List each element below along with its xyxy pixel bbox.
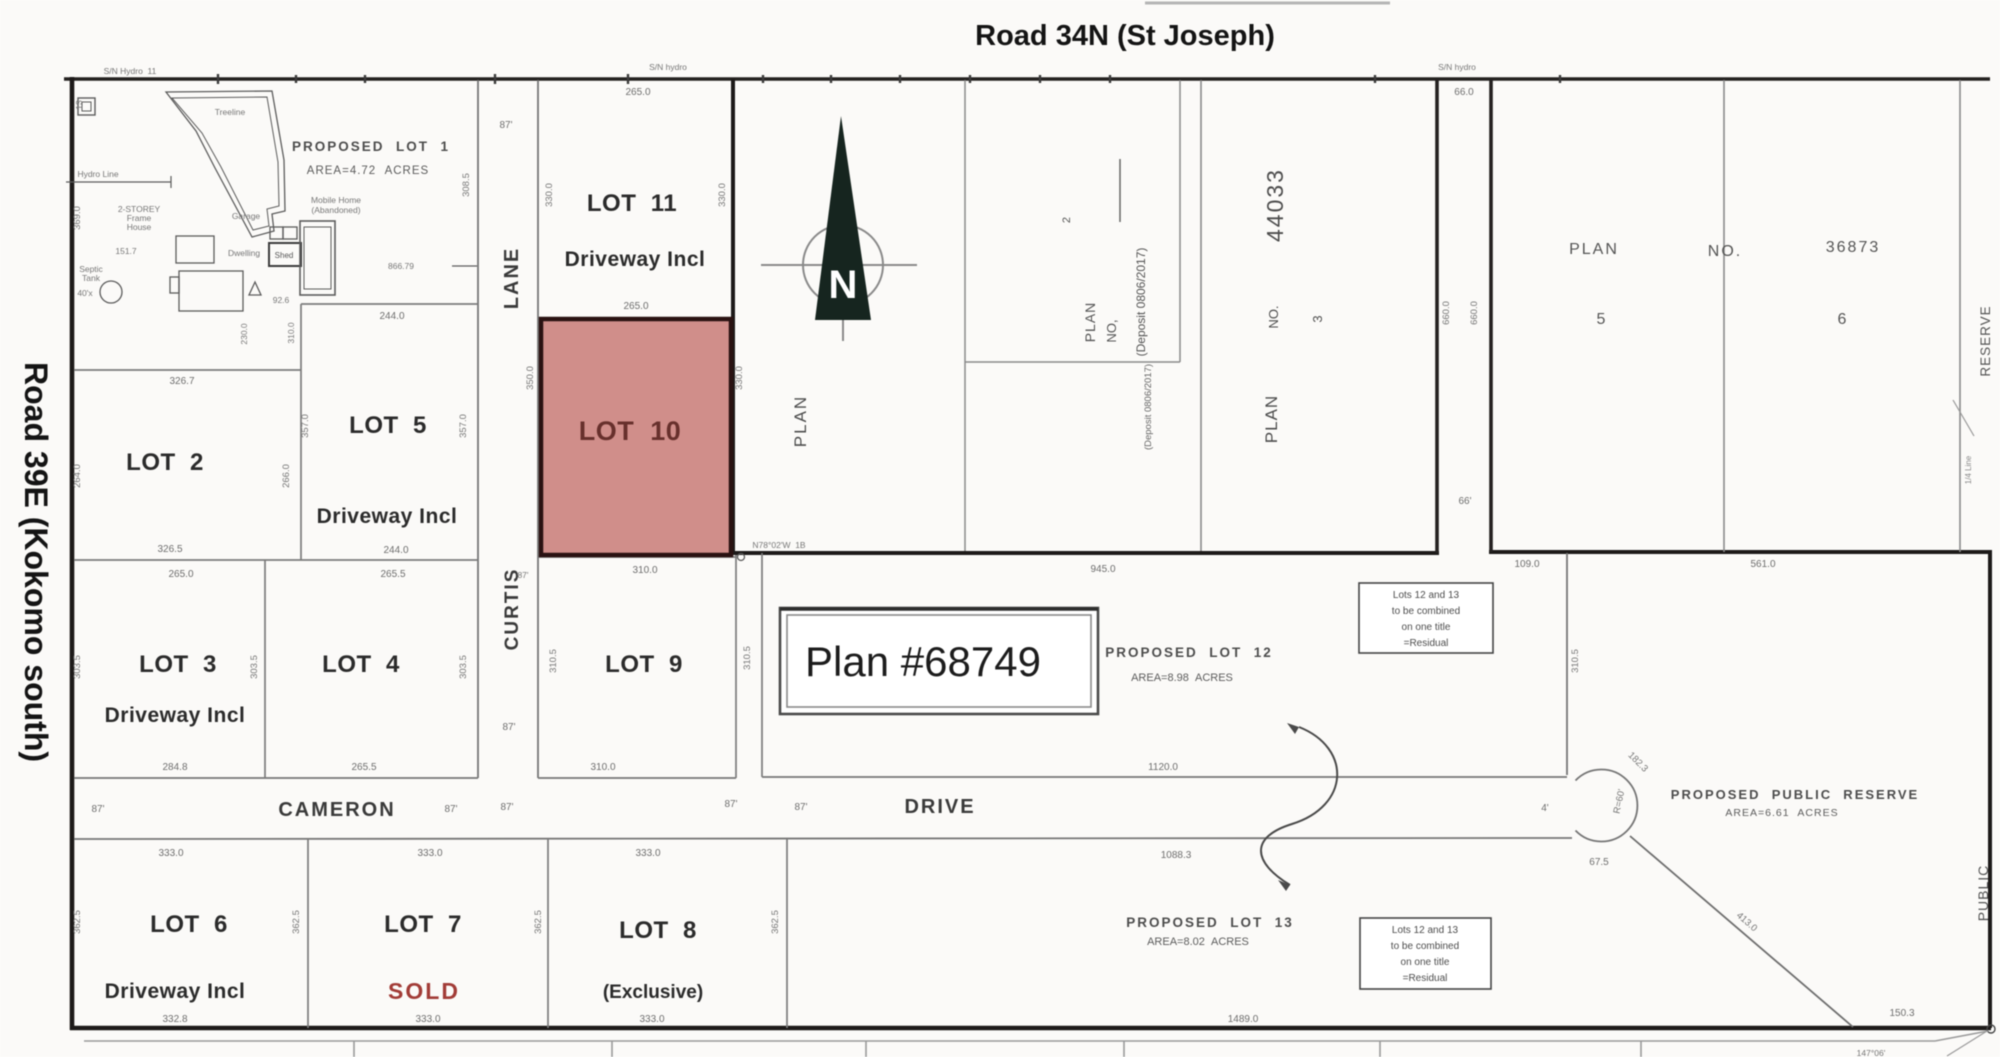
svg-text:(Abandoned): (Abandoned): [311, 205, 360, 215]
svg-text:326.7: 326.7: [169, 376, 194, 387]
svg-text:326.5: 326.5: [157, 544, 182, 555]
svg-text:NO,: NO,: [1104, 319, 1119, 342]
svg-text:945.0: 945.0: [1090, 564, 1115, 575]
svg-text:265.0: 265.0: [623, 301, 648, 312]
svg-text:362.5: 362.5: [291, 910, 302, 934]
svg-text:265.5: 265.5: [380, 569, 405, 580]
svg-text:284.8: 284.8: [162, 762, 187, 773]
svg-text:561.0: 561.0: [1750, 559, 1775, 570]
svg-text:308.5: 308.5: [461, 173, 472, 197]
svg-text:362.5: 362.5: [770, 910, 781, 934]
svg-text:151.7: 151.7: [115, 246, 137, 256]
svg-text:Tank: Tank: [82, 273, 101, 283]
svg-text:866.79: 866.79: [388, 261, 414, 271]
svg-text:36873: 36873: [1826, 239, 1881, 256]
svg-text:5: 5: [1597, 311, 1608, 328]
svg-text:4': 4': [1541, 803, 1549, 814]
svg-text:310.5: 310.5: [742, 646, 753, 670]
svg-text:13: 13: [74, 100, 84, 110]
svg-text:87': 87': [794, 802, 807, 813]
svg-text:1/4 Line: 1/4 Line: [1964, 455, 1973, 484]
svg-text:=Residual: =Residual: [1404, 638, 1449, 649]
svg-text:87': 87': [444, 804, 457, 815]
svg-text:310.0: 310.0: [590, 762, 615, 773]
svg-text:PROPOSED LOT 12: PROPOSED LOT 12: [1105, 645, 1273, 660]
svg-text:Hydro Line: Hydro Line: [77, 169, 118, 179]
svg-text:333.0: 333.0: [639, 1014, 664, 1025]
svg-text:LOT 6: LOT 6: [150, 911, 228, 938]
svg-text:310.5: 310.5: [1570, 649, 1581, 673]
svg-text:LOT 3: LOT 3: [139, 651, 217, 678]
svg-text:67.5: 67.5: [1589, 857, 1609, 868]
svg-text:660.0: 660.0: [1469, 301, 1480, 325]
svg-text:66.0: 66.0: [1454, 87, 1474, 98]
svg-text:LOT 7: LOT 7: [384, 911, 462, 938]
svg-text:244.0: 244.0: [379, 311, 404, 322]
svg-text:NO.: NO.: [1266, 305, 1281, 328]
svg-text:LOT 5: LOT 5: [349, 412, 427, 439]
svg-text:330.0: 330.0: [734, 366, 745, 390]
svg-text:109.0: 109.0: [1514, 559, 1539, 570]
svg-text:PLAN: PLAN: [791, 395, 810, 447]
svg-text:PLAN: PLAN: [1569, 241, 1619, 258]
svg-text:1120.0: 1120.0: [1148, 762, 1178, 773]
svg-text:350.0: 350.0: [525, 366, 536, 390]
svg-text:LOT 4: LOT 4: [322, 651, 400, 678]
svg-text:357.0: 357.0: [458, 414, 469, 438]
svg-text:87': 87': [724, 799, 737, 810]
svg-text:87': 87': [502, 722, 515, 733]
svg-text:=Residual: =Residual: [1403, 973, 1448, 984]
svg-text:303.5: 303.5: [458, 655, 469, 679]
svg-text:660.0: 660.0: [1441, 301, 1452, 325]
svg-text:1088.3: 1088.3: [1161, 850, 1192, 861]
svg-text:87': 87': [499, 120, 512, 131]
svg-text:265.0: 265.0: [168, 569, 193, 580]
svg-text:357.0: 357.0: [300, 414, 311, 438]
svg-text:Shed: Shed: [275, 251, 294, 260]
svg-text:333.0: 333.0: [635, 848, 660, 859]
svg-text:310.0: 310.0: [632, 565, 657, 576]
svg-text:244.0: 244.0: [383, 545, 408, 556]
svg-text:44033: 44033: [1262, 168, 1288, 242]
svg-text:265.5: 265.5: [351, 762, 376, 773]
svg-text:S/N hydro: S/N hydro: [1438, 62, 1476, 72]
svg-text:265.0: 265.0: [625, 87, 650, 98]
svg-text:Driveway Incl: Driveway Incl: [317, 505, 458, 528]
svg-text:1489.0: 1489.0: [1228, 1014, 1259, 1025]
svg-text:266.0: 266.0: [281, 464, 292, 488]
svg-text:310.5: 310.5: [548, 649, 559, 673]
svg-text:Lots 12 and 13: Lots 12 and 13: [1392, 925, 1459, 936]
svg-text:(Deposit 0806/2017): (Deposit 0806/2017): [1134, 248, 1148, 357]
svg-text:LOT 8: LOT 8: [619, 917, 697, 944]
svg-text:87': 87': [91, 804, 104, 815]
svg-text:AREA=8.02 ACRES: AREA=8.02 ACRES: [1147, 936, 1249, 948]
svg-text:330.0: 330.0: [717, 183, 728, 207]
svg-text:6: 6: [1838, 311, 1849, 328]
svg-text:PROPOSED LOT 1: PROPOSED LOT 1: [292, 139, 450, 154]
svg-text:Plan #68749: Plan #68749: [805, 638, 1041, 685]
svg-text:to be combined: to be combined: [1391, 941, 1459, 952]
svg-text:PLAN: PLAN: [1082, 302, 1098, 343]
svg-text:330.0: 330.0: [544, 183, 555, 207]
svg-text:92.6: 92.6: [273, 295, 290, 305]
svg-text:Driveway Incl: Driveway Incl: [105, 980, 246, 1003]
svg-text:Mobile Home: Mobile Home: [311, 195, 361, 205]
svg-text:PUBLIC: PUBLIC: [1975, 865, 1991, 922]
svg-text:AREA=4.72 ACRES: AREA=4.72 ACRES: [307, 165, 429, 177]
svg-text:on one title: on one title: [1401, 957, 1450, 968]
svg-text:Garage: Garage: [232, 211, 261, 221]
svg-text:AREA=6.61 ACRES: AREA=6.61 ACRES: [1725, 807, 1838, 819]
svg-text:LOT 2: LOT 2: [126, 449, 204, 476]
svg-text:264.0: 264.0: [72, 464, 83, 488]
svg-text:LOT 9: LOT 9: [605, 651, 683, 678]
svg-text:Driveway Incl: Driveway Incl: [105, 704, 246, 727]
svg-text:147°06': 147°06': [1857, 1048, 1886, 1057]
svg-text:SOLD: SOLD: [388, 978, 460, 1004]
svg-text:333.0: 333.0: [417, 848, 442, 859]
svg-text:(Deposit 0806/2017): (Deposit 0806/2017): [1143, 364, 1154, 450]
svg-text:DRIVE: DRIVE: [904, 796, 975, 818]
svg-text:87': 87': [500, 802, 513, 813]
svg-text:40'x: 40'x: [77, 288, 93, 298]
svg-text:Lots 12 and 13: Lots 12 and 13: [1393, 590, 1460, 601]
svg-text:AREA=8.98 ACRES: AREA=8.98 ACRES: [1131, 672, 1233, 684]
svg-text:N78°02'W 1B: N78°02'W 1B: [752, 540, 806, 550]
svg-text:2: 2: [1061, 217, 1073, 223]
svg-text:House: House: [127, 222, 152, 232]
svg-text:150.3: 150.3: [1889, 1008, 1914, 1019]
svg-text:S/N Hydro 11: S/N Hydro 11: [104, 66, 157, 76]
svg-text:NO.: NO.: [1708, 243, 1742, 260]
svg-text:(Exclusive): (Exclusive): [603, 982, 703, 1003]
svg-text:Treeline: Treeline: [215, 107, 246, 117]
svg-text:Road 39E (Kokomo south): Road 39E (Kokomo south): [18, 362, 54, 762]
svg-text:3: 3: [1310, 315, 1325, 322]
svg-text:PROPOSED LOT 13: PROPOSED LOT 13: [1126, 915, 1294, 930]
svg-text:LOT 10: LOT 10: [579, 416, 682, 446]
svg-text:87': 87': [517, 570, 528, 580]
svg-text:333.0: 333.0: [415, 1014, 440, 1025]
svg-text:66': 66': [1458, 496, 1471, 507]
svg-text:303.5: 303.5: [249, 655, 260, 679]
svg-text:332.8: 332.8: [162, 1014, 187, 1025]
svg-text:S/N hydro: S/N hydro: [649, 62, 687, 72]
svg-text:LOT 11: LOT 11: [587, 190, 677, 217]
svg-text:CURTIS: CURTIS: [502, 568, 523, 651]
svg-text:303.5: 303.5: [72, 655, 83, 679]
svg-text:362.5: 362.5: [72, 910, 83, 934]
svg-text:LANE: LANE: [501, 247, 523, 309]
svg-text:333.0: 333.0: [158, 848, 183, 859]
svg-text:Road 34N (St Joseph): Road 34N (St Joseph): [975, 20, 1275, 52]
svg-text:PROPOSED PUBLIC RESERVE: PROPOSED PUBLIC RESERVE: [1671, 787, 1919, 802]
svg-text:362.5: 362.5: [533, 910, 544, 934]
svg-text:Driveway Incl: Driveway Incl: [565, 248, 706, 271]
svg-text:230.0: 230.0: [239, 323, 249, 345]
svg-text:CAMERON: CAMERON: [278, 799, 395, 821]
svg-text:369.0: 369.0: [72, 206, 83, 230]
svg-text:to be combined: to be combined: [1392, 606, 1460, 617]
svg-text:RESERVE: RESERVE: [1978, 305, 1993, 376]
svg-text:on one title: on one title: [1402, 622, 1451, 633]
svg-text:PLAN: PLAN: [1262, 395, 1281, 443]
svg-text:N: N: [829, 263, 858, 307]
svg-text:310.0: 310.0: [286, 322, 296, 344]
svg-text:Dwelling: Dwelling: [228, 248, 260, 258]
